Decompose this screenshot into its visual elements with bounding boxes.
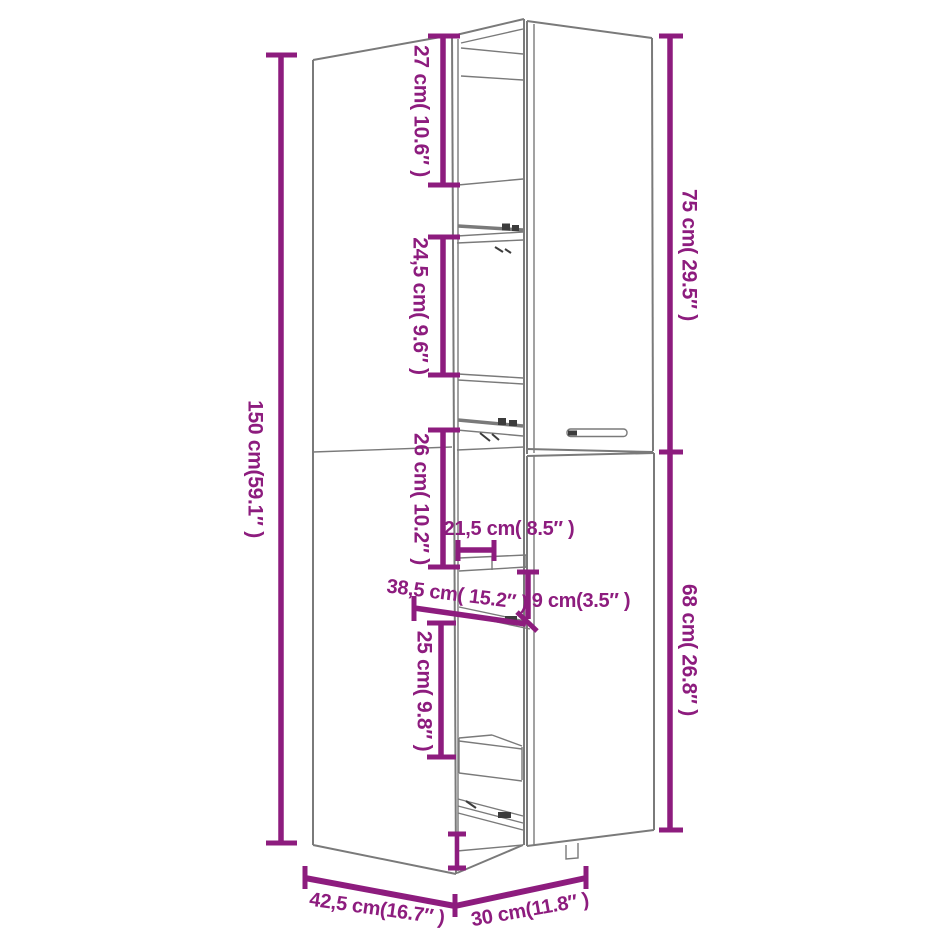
dimension-label-top-compartment: 27 cm( 10.6″ ) [410,45,433,177]
door-handle [567,429,627,437]
dimension-base-width: 30 cm(11.8″ ) [455,866,591,931]
dimension-pullout-depth: 38,5 cm( 15.2″ ) [385,575,537,631]
dimension-fourth-compartment: 25 cm( 9.8″ ) [413,623,457,757]
dimension-total-height: 150 cm(59.1″ ) [244,55,298,843]
dimension-label-second-compartment: 24,5 cm( 9.6″ ) [409,237,432,374]
door-leg [566,843,578,859]
lower-door [527,453,654,859]
dimension-label-total-height: 150 cm(59.1″ ) [244,400,267,538]
pullout-rail-4 [458,799,523,830]
dimension-label-pullout-depth: 38,5 cm( 15.2″ ) [385,575,528,614]
dimension-lower-door-height: 68 cm( 26.8″ ) [659,452,701,830]
upper-door [527,21,653,454]
dimension-label-upper-door-height: 75 cm( 29.5″ ) [678,189,701,321]
pullout-rail-2 [457,418,523,441]
cabinet-drawing [313,19,654,874]
dimension-label-base-width: 30 cm(11.8″ ) [469,889,590,931]
dimension-label-lower-door-height: 68 cm( 26.8″ ) [678,584,701,716]
dimension-label-base-depth: 42,5 cm(16.7″ ) [308,889,446,930]
dimension-label-tray-height: 9 cm(3.5″ ) [532,590,631,612]
dimension-label-fourth-compartment: 25 cm( 9.8″ ) [413,631,436,752]
dimension-base-depth: 42,5 cm(16.7″ ) [305,866,455,929]
dimension-label-tray-width: 21,5 cm( 8.5″ ) [444,518,575,540]
pullout-basket [459,735,522,781]
diagram-canvas: 150 cm(59.1″ ) 27 cm( 10.6″ ) 24,5 cm( 9… [0,0,947,947]
dimension-upper-door-height: 75 cm( 29.5″ ) [659,36,701,452]
dimension-third-compartment: 26 cm( 10.2″ ) [410,430,461,567]
dimension-label-third-compartment: 26 cm( 10.2″ ) [410,433,433,565]
dimension-tray-width: 21,5 cm( 8.5″ ) [444,518,575,561]
pullout-rail-1 [457,224,523,254]
dimension-diagram: 150 cm(59.1″ ) 27 cm( 10.6″ ) 24,5 cm( 9… [0,0,947,947]
